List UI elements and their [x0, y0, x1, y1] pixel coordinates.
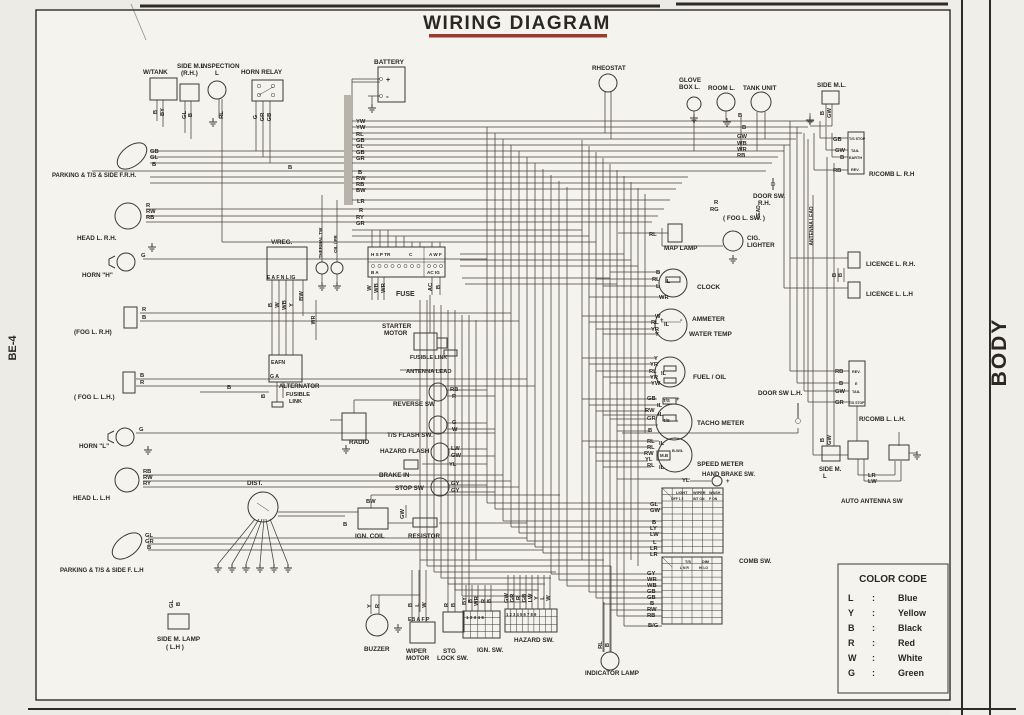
wire-label-232: REV. [851, 168, 860, 172]
label-parking-flh: PARKING & T/S & SIDE F. L.H [60, 568, 144, 574]
label-licence-rh: LICENCE L. R.H. [866, 261, 916, 268]
color-code-name: Blue [898, 593, 918, 603]
label-speed: SPEED METER [697, 461, 744, 468]
diagram-canvas: W/TANKSIDE M.L(R.H.)INSPECTIONLHORN RELA… [0, 0, 1024, 715]
wire-label-117: G [141, 253, 146, 259]
wire-label-248: LW [868, 479, 877, 485]
wire-label-107: G [253, 114, 259, 119]
color-code-name: Yellow [898, 608, 927, 618]
wire-label-250: GW [650, 508, 661, 514]
wire-label-85: 1 2 3 4 5 [466, 615, 484, 620]
wire-label-51: WR [311, 315, 317, 324]
wire-label-143: RB [450, 387, 458, 393]
wire-label-111: GL [150, 155, 159, 161]
wire-label-188: + [660, 318, 664, 324]
label-head-lh: HEAD L. L.H [73, 495, 111, 502]
wire-label-61: AC IG [427, 270, 440, 275]
wire-label-202: GR [647, 416, 657, 422]
label-fuse: FUSE [396, 291, 415, 298]
color-code-name: Black [898, 623, 923, 633]
label-ign-coil: IGN. COIL [355, 533, 385, 540]
wire-label-141: AC [428, 282, 434, 291]
label-rcomb-lh: R/COMB L. L.H. [859, 416, 906, 423]
wire-label-84: EB A F P [408, 617, 430, 623]
label-inspection: INSPECTION [201, 63, 240, 70]
wire-label-137: B [227, 385, 231, 391]
wire-label-158: L [415, 603, 421, 607]
label-side-ml-low: SIDE M. [819, 467, 842, 473]
wire-label-210: M.B [660, 453, 668, 458]
wire-label-236: B [838, 273, 844, 277]
label-clock: CLOCK [697, 284, 720, 291]
color-code-title: COLOR CODE [859, 574, 927, 585]
wire-label-265: L N R [680, 566, 689, 570]
wire-label-205: B [648, 428, 652, 434]
color-code-name: White [898, 653, 923, 663]
wiring-diagram-page: W/TANKSIDE M.L(R.H.)INSPECTIONLHORN RELA… [0, 0, 1024, 715]
label-door-sw-rh: DOOR SW. [753, 193, 785, 200]
wire-label-65: FUSIBLE LINK [410, 355, 447, 361]
label-tacho: TACHO METER [697, 420, 744, 427]
wire-label-238: B [839, 381, 843, 387]
wire-label-275: B/G [648, 623, 659, 629]
wire-label-234: GW [827, 107, 833, 118]
wire-label-276: + [386, 77, 390, 84]
color-code-key: Y [848, 608, 854, 618]
label-horn-l: HORN "L" [79, 443, 109, 450]
wire-label-98: LR [357, 199, 366, 205]
wire-label-122: G [139, 427, 144, 433]
wire-label-260: OFF 1 2 [671, 497, 684, 501]
label-map-lamp: MAP LAMP [664, 245, 697, 252]
wire-label-50: OIL / PR [333, 234, 338, 252]
label-dist: DIST. [247, 480, 263, 487]
wire-label-139: WB [374, 283, 380, 293]
wire-label-133: WB [282, 300, 288, 310]
wire-label-277: - [386, 92, 389, 101]
label-side-ml-top: SIDE M.L. [817, 82, 846, 89]
wire-label-264: DIM [702, 560, 709, 564]
wire-label-4: L [215, 70, 219, 77]
label-ts-flash: T/S FLASH SW. [387, 432, 433, 439]
wire-label-56: LINK [289, 399, 302, 405]
wire-label-224: RB [737, 153, 745, 159]
wire-label-106: RL [219, 111, 225, 119]
wire-label-218: RG [710, 207, 719, 213]
wire-label-23: LIGHTER [747, 242, 775, 249]
wire-label-152: BW [366, 499, 376, 505]
wire-label-240: GR [835, 400, 845, 406]
wire-label-102: B [153, 110, 159, 114]
wire-label-203: T/S [663, 418, 670, 423]
wire-label-59: A W F [429, 252, 442, 257]
color-code-sep: : [872, 668, 875, 678]
wire-label-153: B [343, 522, 347, 528]
wire-label-184: RL [651, 320, 659, 326]
label-alternator: ALTERNATOR [279, 384, 320, 390]
wire-label-138: W [367, 285, 373, 291]
label-rcomb-rh: R/COMB L. R.H [869, 171, 915, 178]
color-code-sep: : [872, 653, 875, 663]
wire-label-154: GW [400, 508, 406, 519]
wire-label-178: B [656, 270, 660, 276]
wire-label-52: EAFN [271, 360, 285, 366]
wire-label-261: INT ON [693, 497, 705, 501]
label-glove-box: GLOVE [679, 77, 701, 84]
wire-label-219: B [738, 113, 742, 119]
wire-label-146: W [452, 427, 458, 433]
label-resistor: RESISTOR [408, 533, 441, 540]
wire-label-120: B [140, 373, 144, 379]
wire-label-228: RB [833, 168, 841, 174]
label-fuel-oil: FUEL / OIL [693, 374, 726, 381]
wire-label-198: + [676, 397, 680, 403]
label-hazard-flash: HAZARD FLASH [380, 448, 430, 455]
wire-label-244: T/S STOP [849, 401, 865, 405]
wire-label-253: LW [650, 532, 659, 538]
wire-label-97: BW [356, 188, 366, 194]
wire-label-246: GW [827, 434, 833, 445]
wire-label-213: RL [647, 463, 655, 469]
wire-label-231: EARTH [849, 156, 862, 160]
wire-label-134: Y [289, 303, 295, 307]
label-hazard-sw: HAZARD SW. [514, 637, 554, 644]
wire-label-179: RL [652, 277, 660, 283]
wire-label-157: B [408, 603, 414, 607]
label-stop-sw: STOP SW [395, 485, 424, 492]
wire-label-2: (R.H.) [181, 70, 198, 77]
color-code-sep: : [872, 638, 875, 648]
wire-label-226: GW [835, 148, 846, 154]
wire-label-177: RL [649, 232, 657, 238]
label-auto-antenna: AUTO ANTENNA SW [841, 498, 903, 505]
label-buzzer: BUZZER [364, 646, 390, 653]
color-code-key: B [848, 623, 855, 633]
wire-label-109: GB [267, 113, 273, 122]
wire-label-200: RW [645, 408, 655, 414]
wire-label-239: GW [835, 389, 846, 395]
wire-label-129: GL [169, 600, 175, 609]
wire-label-225: GB [833, 137, 842, 143]
label-ign-sw: IGN. SW. [477, 647, 503, 654]
wire-label-227: B [840, 155, 844, 161]
wire-label-259: WASH [709, 491, 721, 495]
wire-label-103: BY [160, 108, 166, 116]
wire-label-149: YL [449, 462, 457, 468]
label-rheostat: RHEOSTAT [592, 65, 626, 72]
wire-label-182: WR [659, 295, 669, 301]
wire-label-174: W [546, 595, 552, 601]
label-indicator: INDICATOR LAMP [585, 670, 639, 677]
wire-label-166: B [487, 599, 493, 603]
wire-label-241: REV. [852, 370, 861, 374]
wire-label-233: B [820, 111, 826, 115]
wire-label-195: YW [651, 381, 661, 387]
label-fog-rh: (FOG L. R.H) [74, 329, 112, 336]
wire-label-64: MOTOR [384, 330, 408, 337]
wire-label-193: IL [661, 371, 667, 377]
wire-label-125: RY [143, 481, 151, 487]
wire-label-274: RB [647, 613, 655, 619]
label-cig: CIG. [747, 235, 760, 242]
wire-label-131: B [268, 303, 274, 307]
label-vreg: V/REG. [271, 239, 293, 246]
wire-label-113: B [288, 165, 292, 171]
wire-label-230: TAIL [851, 149, 860, 153]
label-horn-h: HORN "H" [82, 272, 113, 279]
label-brake-in: BRAKE IN [379, 472, 410, 479]
page-code: BE-4 [7, 335, 19, 361]
wire-label-197: T/S [663, 398, 670, 403]
label-reverse-sw: REVERSE SW [393, 401, 435, 408]
wire-label-191: YR [650, 362, 659, 368]
label-wiper: WIPER [406, 648, 427, 655]
label-water-temp: WATER TEMP [689, 331, 733, 338]
wire-label-257: LIGHT [676, 491, 688, 495]
wire-label-258: WIPER [693, 491, 706, 495]
wire-label-215: YL [682, 478, 690, 484]
wire-label-46: ( L.H ) [166, 644, 184, 651]
wire-label-243: TAIL [852, 390, 861, 394]
wire-label-57: H S P TR [371, 252, 391, 257]
wire-label-101: GR [356, 221, 366, 227]
wire-label-145: G [452, 420, 457, 426]
label-horn-relay: HORN RELAY [241, 69, 283, 76]
wire-label-116: RB [146, 215, 154, 221]
wire-label-119: B [142, 315, 146, 321]
label-antenna-lead: ANTENNA LEAD [406, 369, 452, 375]
wire-label-161: B [451, 603, 457, 607]
wire-label-151: GY [451, 488, 460, 494]
wire-label-256: LR [650, 552, 659, 558]
label-side-m-lamp: SIDE M. LAMP [157, 636, 200, 643]
wire-label-159: W [422, 602, 428, 608]
wire-label-135: BW [299, 291, 305, 301]
wire-label-266: HI LO [699, 566, 708, 570]
wire-label-34: L [823, 474, 827, 480]
wire-label-221: GW [737, 134, 748, 140]
wire-label-214: IL [659, 465, 665, 471]
wire-label-263: T/S [685, 560, 691, 564]
color-code-sep: : [872, 623, 875, 633]
label-hand-brake: HAND BRAKE SW. [702, 472, 755, 478]
wire-label-216: + [726, 479, 730, 485]
wire-label-180: IL [665, 279, 671, 285]
wire-label-155: Y [367, 604, 373, 608]
wire-label-237: RB [835, 369, 843, 375]
wire-label-175: RL [598, 641, 604, 649]
wire-label-49: THERMAL TW [318, 227, 323, 258]
wire-label-148: GW [451, 453, 462, 459]
label-fog-l-sw: ( FOG L. SW. ) [723, 215, 765, 222]
wire-label-88: YW [356, 125, 366, 131]
label-tank-unit: TANK UNIT [743, 85, 777, 92]
label-door-sw-lh: DOOR SW L.H. [758, 390, 803, 397]
label-comb-sw: COMB SW. [739, 558, 772, 565]
wire-label-53: G A [270, 374, 279, 380]
wire-label-196: GB [647, 396, 656, 402]
label-w-tank: W/TANK [143, 69, 168, 76]
color-code-sep: : [872, 608, 875, 618]
label-fog-lh: ( FOG L. L.H.) [74, 394, 115, 401]
label-stg: STG [443, 648, 456, 655]
title-underline [429, 34, 607, 38]
wire-label-164: WR [474, 595, 480, 605]
wire-label-211: B.W/L [672, 448, 684, 453]
label-head-rh: HEAD L. R.H. [77, 235, 117, 242]
label-ammeter: AMMETER [692, 316, 725, 323]
wire-label-112: B [152, 162, 156, 168]
wire-label-185: IL [664, 322, 670, 328]
wire-label-220: B [742, 125, 746, 131]
color-code-key: W [848, 653, 857, 663]
section-side-label: BODY [988, 318, 1011, 387]
wire-label-181: L [656, 284, 660, 290]
wire-label-48: E A F N L IG [267, 275, 296, 281]
page-title: WIRING DIAGRAM [423, 13, 611, 34]
wire-label-207: IL [659, 441, 665, 447]
wire-label-176: B [605, 643, 611, 647]
wire-label-132: W [275, 302, 281, 308]
color-code-key: L [848, 593, 854, 603]
wire-label-80: LOCK SW. [437, 655, 468, 662]
label-battery: BATTERY [374, 59, 405, 66]
wire-label-108: GR [260, 112, 266, 122]
wire-label-147: LW [451, 446, 460, 452]
color-code-key: G [848, 668, 855, 678]
wire-label-229: T/S STOP [849, 137, 866, 141]
wire-label-9: BOX L. [679, 84, 700, 91]
wire-label-142: B [436, 285, 442, 289]
wire-label-187: Y [655, 332, 659, 338]
label-parking-frh: PARKING & T/S & SIDE F.R.H. [52, 173, 137, 179]
label-radio: RADIO [349, 439, 369, 446]
wire-label-140: WR [381, 282, 387, 292]
label-licence-lh: LICENCE L. L.H [866, 291, 913, 298]
wire-label-262: P ON [709, 497, 718, 501]
wire-label-128: B [147, 545, 151, 551]
label-room-l: ROOM L. [708, 85, 735, 92]
color-code-name: Red [898, 638, 915, 648]
wire-label-245: B [820, 438, 826, 442]
wire-label-136: B [261, 394, 267, 398]
wire-label-86: 1 2 3 4 5 6 7 8 9 [506, 612, 537, 617]
wire-label-105: B [188, 113, 194, 117]
label-starter: STARTER [382, 323, 412, 330]
wire-label-130: B [176, 602, 182, 606]
wire-label-55: FUSIBLE [286, 392, 310, 398]
wire-label-93: GR [356, 156, 366, 162]
color-code-sep: : [872, 593, 875, 603]
color-code-key: R [848, 638, 855, 648]
label-antenna-lead-v: ANTENNA LEAD [809, 206, 815, 246]
wire-label-150: GY [451, 481, 460, 487]
wire-label-199: IL [657, 403, 663, 409]
color-code-name: Green [898, 668, 924, 678]
wire-label-60: B A [371, 270, 379, 275]
wire-label-78: MOTOR [406, 655, 430, 662]
